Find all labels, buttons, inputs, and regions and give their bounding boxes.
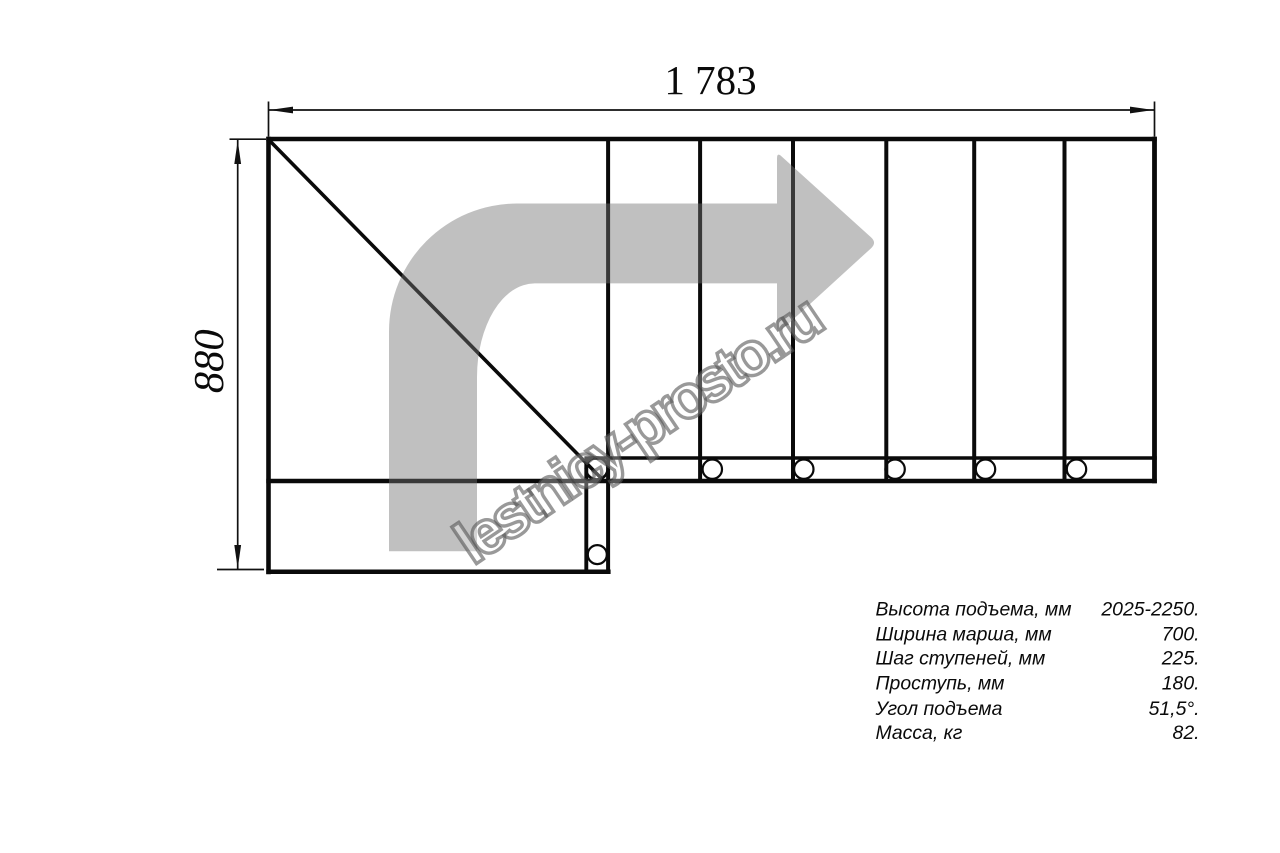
svg-text:Проступь, мм: Проступь, мм [876,673,1005,695]
svg-text:225.: 225. [1161,647,1200,669]
svg-text:Высота подъема, мм: Высота подъема, мм [876,598,1072,620]
svg-text:82.: 82. [1173,722,1200,744]
svg-text:Масса, кг: Масса, кг [876,722,963,744]
svg-text:1 783: 1 783 [664,57,756,103]
svg-text:Ширина марша, мм: Ширина марша, мм [876,624,1052,646]
svg-text:51,5°.: 51,5°. [1149,698,1200,720]
svg-text:180.: 180. [1162,673,1200,695]
svg-text:700.: 700. [1162,624,1200,646]
svg-text:2025-2250.: 2025-2250. [1100,598,1199,620]
svg-text:880: 880 [186,329,233,393]
svg-text:Шаг ступеней, мм: Шаг ступеней, мм [876,647,1046,669]
svg-text:Угол подъема: Угол подъема [875,698,1003,720]
